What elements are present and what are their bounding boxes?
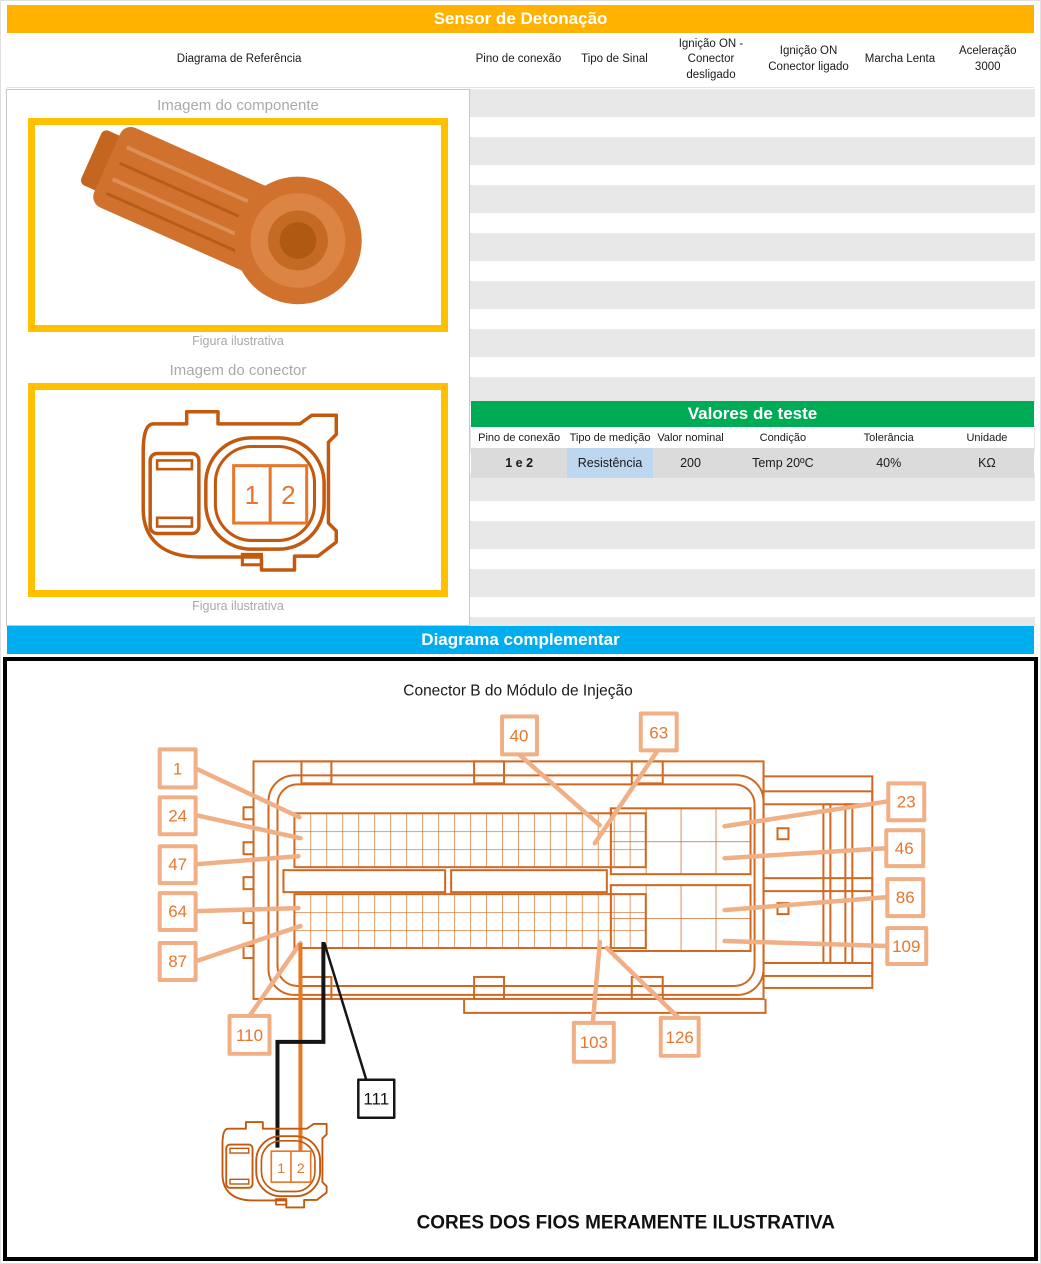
test-values-row: 1 e 2 Resistência 200 Temp 20ºC 40% KΩ: [471, 448, 1034, 478]
svg-text:110: 110: [236, 1026, 263, 1045]
test-values-title: Valores de teste: [471, 401, 1034, 427]
pin-label-47: 47: [160, 846, 196, 883]
svg-text:63: 63: [649, 723, 668, 742]
test-col-tolerancia: Tolerância: [837, 427, 939, 448]
pin-label-86: 86: [887, 879, 923, 916]
test-col-unidade: Unidade: [940, 427, 1034, 448]
ecu-connector-drawing: [244, 761, 873, 1013]
pin-label-109: 109: [887, 928, 926, 964]
reference-diagram-panel: Imagem do componente: [6, 89, 470, 626]
svg-text:23: 23: [897, 792, 916, 811]
reference-header-row: Diagrama de Referência Pino de conexão T…: [7, 33, 1034, 88]
svg-text:86: 86: [896, 888, 915, 907]
ref-col-pino: Pino de conexão: [471, 52, 565, 68]
svg-text:126: 126: [666, 1028, 694, 1047]
svg-text:47: 47: [168, 855, 187, 874]
connector-figure-caption: Figura ilustrativa: [7, 599, 469, 613]
test-cell-tipo: Resistência: [567, 448, 653, 478]
test-col-valor: Valor nominal: [653, 427, 728, 448]
pin-label-110: 110: [230, 1016, 270, 1054]
pin-grid-bottom-left: [294, 894, 645, 948]
pin-label-111: 111: [358, 1080, 394, 1118]
connector-pin-1: 1: [245, 480, 260, 510]
pin-label-40: 40: [502, 716, 537, 754]
svg-text:103: 103: [580, 1033, 608, 1052]
ref-col-diagrama: Diagrama de Referência: [7, 52, 471, 68]
sensor-connector-pin-1: 1: [277, 1160, 285, 1176]
svg-text:64: 64: [168, 902, 187, 921]
sensor-connector-pin-2: 2: [297, 1160, 305, 1176]
test-cell-pino: 1 e 2: [471, 448, 567, 478]
complementary-diagram: Conector B do Módulo de Injeção: [3, 657, 1038, 1261]
svg-text:40: 40: [510, 726, 529, 745]
pin-label-103: 103: [574, 1023, 614, 1062]
diagram-title: Conector B do Módulo de Injeção: [403, 683, 632, 700]
svg-text:87: 87: [168, 952, 187, 971]
ref-col-marcha-lenta: Marcha Lenta: [858, 52, 941, 68]
ref-col-ignicao-desligado: Ignição ON - Conector desligado: [663, 37, 759, 84]
pin-label-1: 1: [160, 749, 196, 787]
svg-text:24: 24: [168, 806, 187, 825]
main-content: Imagem do componente: [6, 89, 1035, 626]
test-values-table: Valores de teste Pino de conexão Tipo de…: [471, 401, 1034, 478]
test-col-pino: Pino de conexão: [471, 427, 567, 448]
ref-col-tipo-sinal: Tipo de Sinal: [566, 52, 664, 68]
sensor-ring: [234, 177, 362, 305]
leader-111: [324, 943, 366, 1080]
component-figure-caption: Figura ilustrativa: [7, 334, 469, 348]
main-title-bar: Sensor de Detonação: [7, 5, 1034, 33]
pin-label-64: 64: [160, 893, 196, 930]
component-figure-title: Imagem do componente: [7, 97, 469, 114]
connector-figure-block: Imagem do conector 1 2 Figura ilustrativ…: [7, 362, 469, 613]
test-cell-unidade: KΩ: [940, 448, 1034, 478]
test-col-condicao: Condição: [728, 427, 837, 448]
pin-label-46: 46: [886, 830, 923, 866]
test-cell-tolerancia: 40%: [837, 448, 939, 478]
connector-pin-2: 2: [281, 480, 296, 510]
connector-drawing: 1 2: [35, 390, 441, 590]
svg-text:111: 111: [363, 1090, 389, 1109]
knock-sensor-photo: [35, 125, 441, 325]
pin-label-23: 23: [888, 783, 924, 820]
wiring-diagram: Conector B do Módulo de Injeção: [7, 661, 1034, 1257]
ref-col-ignicao-ligado: Ignição ON Conector ligado: [759, 44, 859, 75]
pin-label-126: 126: [661, 1018, 699, 1056]
page: Sensor de Detonação Diagrama de Referênc…: [0, 0, 1041, 1264]
pin-label-24: 24: [160, 797, 196, 834]
diagram-section-title: Diagrama complementar: [421, 630, 619, 650]
component-figure-block: Imagem do componente: [7, 97, 469, 348]
connector-figure-frame: 1 2: [28, 383, 448, 597]
connector-figure-title: Imagem do conector: [7, 362, 469, 379]
test-col-tipo: Tipo de medição: [567, 427, 653, 448]
pin-grid-top-right: [611, 808, 751, 874]
diagram-footer-note: CORES DOS FIOS MERAMENTE ILUSTRATIVA: [417, 1212, 836, 1233]
signal-rows-panel: Valores de teste Pino de conexão Tipo de…: [470, 89, 1035, 626]
svg-text:46: 46: [895, 839, 914, 858]
pin-label-87: 87: [160, 943, 196, 980]
svg-text:109: 109: [892, 937, 920, 956]
sensor-connector-drawing: 1 2: [223, 1122, 327, 1207]
page-title: Sensor de Detonação: [434, 9, 608, 29]
component-figure-frame: [28, 118, 448, 332]
diagram-title-bar: Diagrama complementar: [7, 626, 1034, 654]
sensor-wires: [277, 942, 366, 1151]
test-cell-condicao: Temp 20ºC: [728, 448, 837, 478]
test-cell-valor: 200: [653, 448, 728, 478]
pin-label-63: 63: [641, 713, 677, 750]
test-values-columns: Pino de conexão Tipo de medição Valor no…: [471, 427, 1034, 448]
svg-text:1: 1: [173, 759, 182, 778]
ref-col-aceleracao: Aceleração 3000: [942, 44, 1034, 75]
